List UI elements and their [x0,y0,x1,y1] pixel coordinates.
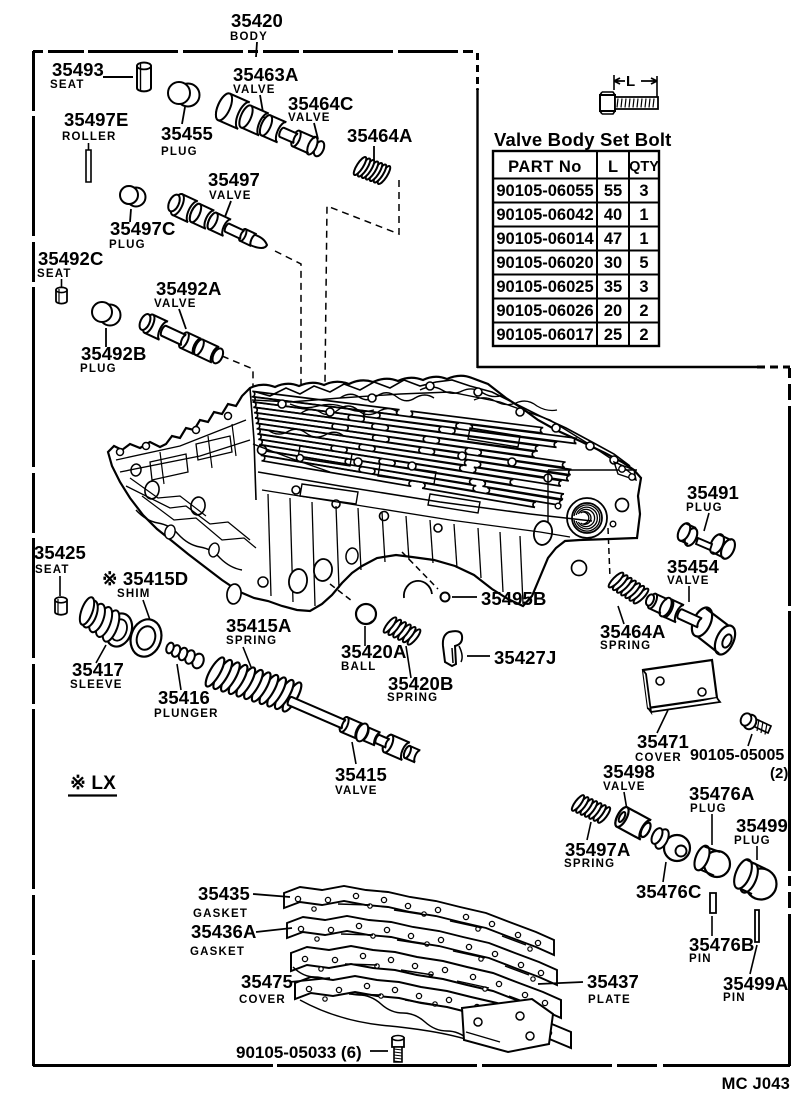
svg-text:90105-06017: 90105-06017 [496,326,593,344]
svg-text:35420A: 35420A [341,641,406,662]
svg-text:35497: 35497 [208,169,260,190]
svg-text:PLUG: PLUG [109,239,146,251]
svg-text:VALVE: VALVE [335,785,378,797]
svg-text:5: 5 [639,254,648,272]
svg-text:35436A: 35436A [191,921,256,942]
svg-text:90105-05033 (6): 90105-05033 (6) [236,1043,362,1062]
svg-text:SEAT: SEAT [37,268,72,280]
svg-text:20: 20 [604,302,622,320]
svg-text:PLUG: PLUG [161,146,198,158]
svg-text:35476C: 35476C [636,881,701,902]
svg-text:1: 1 [639,230,648,248]
svg-text:35491: 35491 [687,482,739,503]
svg-text:35497A: 35497A [565,839,630,860]
svg-text:PLUG: PLUG [734,835,771,847]
svg-text:2: 2 [639,302,648,320]
svg-text:35495B: 35495B [481,588,546,609]
svg-text:SPRING: SPRING [387,692,438,704]
svg-text:35420: 35420 [231,10,283,31]
svg-text:35464A: 35464A [347,125,412,146]
svg-text:COVER: COVER [239,994,286,1006]
svg-text:35464A: 35464A [600,621,665,642]
svg-text:SHIM: SHIM [117,588,151,600]
svg-text:SPRING: SPRING [226,635,277,647]
svg-text:VALVE: VALVE [233,84,276,96]
svg-text:BALL: BALL [341,661,376,673]
svg-text:35416: 35416 [158,687,210,708]
svg-text:PLUNGER: PLUNGER [154,708,219,720]
svg-text:90105-06014: 90105-06014 [496,230,594,248]
svg-text:MC J043: MC J043 [722,1075,790,1093]
svg-text:90105-06020: 90105-06020 [496,254,593,272]
svg-text:25: 25 [604,326,622,344]
svg-text:35454: 35454 [667,556,720,577]
svg-text:VALVE: VALVE [154,298,197,310]
svg-text:35464C: 35464C [288,93,353,114]
svg-text:SLEEVE: SLEEVE [70,679,123,691]
svg-text:35: 35 [604,278,622,296]
svg-text:VALVE: VALVE [288,112,331,124]
svg-text:※ 35415D: ※ 35415D [102,568,188,589]
svg-text:3: 3 [639,278,648,296]
svg-text:SEAT: SEAT [35,564,70,576]
svg-text:35492B: 35492B [81,343,146,364]
svg-text:GASKET: GASKET [193,908,248,920]
svg-text:35475: 35475 [241,971,293,992]
svg-text:35497C: 35497C [110,218,175,239]
svg-text:40: 40 [604,206,622,224]
svg-text:Valve Body Set Bolt: Valve Body Set Bolt [494,129,672,150]
svg-text:PLUG: PLUG [80,363,117,375]
svg-text:2: 2 [639,326,648,344]
svg-text:35420B: 35420B [388,673,453,694]
svg-text:90105-05005: 90105-05005 [690,747,784,764]
svg-text:L: L [608,158,618,176]
svg-text:35493: 35493 [52,59,104,80]
svg-text:35415A: 35415A [226,615,291,636]
svg-text:PLUG: PLUG [686,502,723,514]
svg-text:35492A: 35492A [156,278,221,299]
svg-text:VALVE: VALVE [667,575,710,587]
svg-text:ROLLER: ROLLER [62,131,116,143]
svg-text:55: 55 [604,182,622,200]
svg-text:35476B: 35476B [689,934,754,955]
svg-text:35463A: 35463A [233,64,298,85]
svg-text:35499A: 35499A [723,973,788,994]
svg-text:90105-06025: 90105-06025 [496,278,593,296]
svg-text:35415: 35415 [335,764,387,785]
svg-text:PLATE: PLATE [588,994,631,1006]
svg-text:35435: 35435 [198,883,250,904]
svg-text:GASKET: GASKET [190,946,245,958]
svg-text:QTY: QTY [629,159,659,175]
svg-text:35498: 35498 [603,761,655,782]
svg-text:SPRING: SPRING [564,858,615,870]
svg-text:35476A: 35476A [689,783,754,804]
svg-text:47: 47 [604,230,622,248]
svg-text:SPRING: SPRING [600,640,651,652]
svg-text:SEAT: SEAT [50,79,85,91]
svg-text:35437: 35437 [587,971,639,992]
svg-text:35455: 35455 [161,123,213,144]
svg-text:1: 1 [639,206,648,224]
svg-text:35499: 35499 [736,815,788,836]
svg-text:35471: 35471 [637,731,689,752]
svg-text:PIN: PIN [689,953,712,965]
svg-text:35425: 35425 [34,542,86,563]
svg-text:※ LX: ※ LX [70,773,116,794]
svg-text:VALVE: VALVE [603,781,646,793]
svg-text:L: L [626,73,635,90]
svg-text:35497E: 35497E [64,109,128,130]
svg-text:PART No: PART No [508,158,582,176]
svg-text:35427J: 35427J [494,647,556,668]
svg-text:35492C: 35492C [38,248,103,269]
svg-text:PLUG: PLUG [690,803,727,815]
svg-text:90105-06042: 90105-06042 [496,206,593,224]
svg-text:PIN: PIN [723,992,746,1004]
svg-text:35417: 35417 [72,659,124,680]
svg-text:(2): (2) [770,765,788,782]
svg-text:BODY: BODY [230,31,268,43]
svg-text:VALVE: VALVE [209,190,252,202]
svg-text:90105-06055: 90105-06055 [496,182,593,200]
svg-text:3: 3 [639,182,648,200]
svg-text:30: 30 [604,254,622,272]
svg-text:90105-06026: 90105-06026 [496,302,593,320]
